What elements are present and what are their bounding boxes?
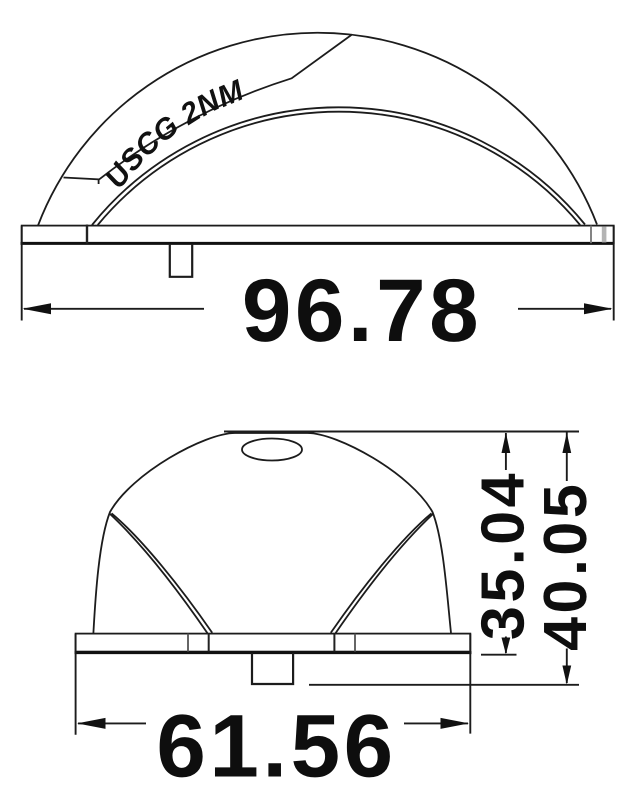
svg-text:40.05: 40.05 bbox=[531, 481, 599, 651]
svg-text:96.78: 96.78 bbox=[242, 260, 482, 360]
svg-text:61.56: 61.56 bbox=[156, 696, 396, 796]
svg-text:35.04: 35.04 bbox=[469, 470, 537, 640]
